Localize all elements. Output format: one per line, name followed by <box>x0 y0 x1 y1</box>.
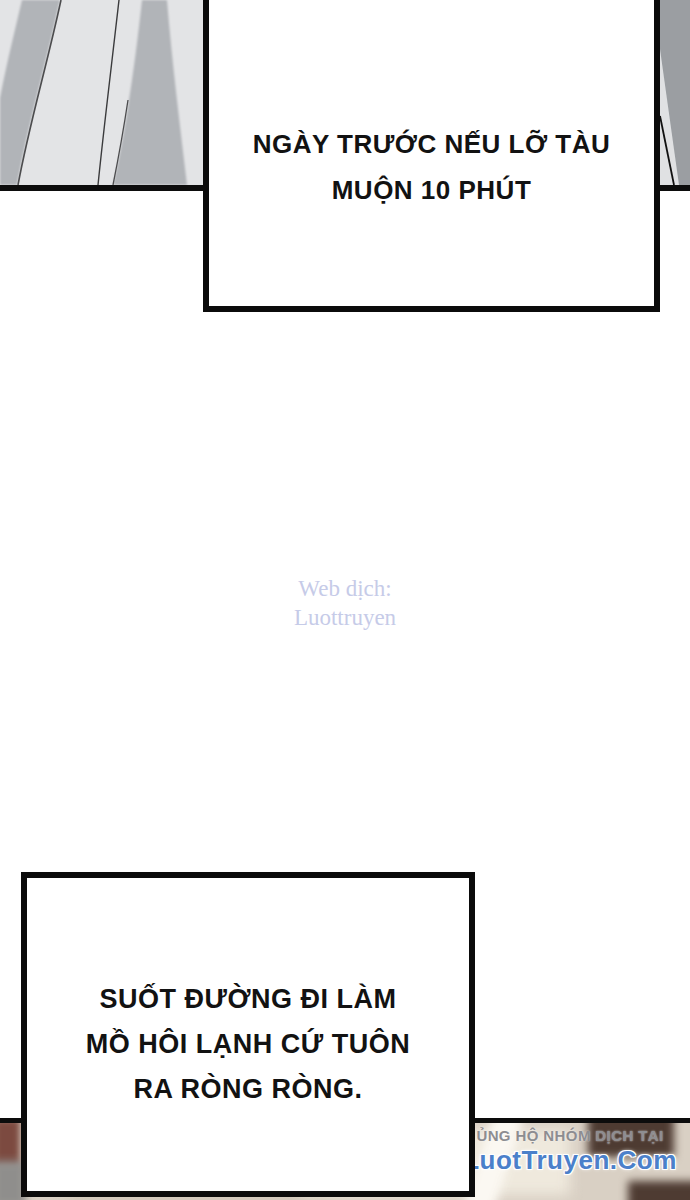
watermark: Web dịch: Luottruyen <box>245 574 445 632</box>
translator-credit: ỦNG HỘ NHÓM DỊCH TẠI LuotTruyen.Com <box>455 1127 685 1176</box>
speech-text-line: SUỐT ĐƯỜNG ĐI LÀM <box>100 977 397 1022</box>
speech-text-line: RA RÒNG RÒNG. <box>134 1067 363 1112</box>
credit-support-text: ỦNG HỘ NHÓM DỊCH TẠI <box>455 1127 685 1144</box>
speech-text-line: MUỘN 10 PHÚT <box>332 167 532 213</box>
credit-site-name: LuotTruyen.Com <box>455 1145 685 1176</box>
watermark-line: Luottruyen <box>245 603 445 632</box>
speech-text-line: MỒ HÔI LẠNH CỨ TUÔN <box>86 1022 410 1067</box>
speech-bubble-top: NGÀY TRƯỚC NẾU LỠ TÀU MUỘN 10 PHÚT <box>203 0 660 312</box>
photo-blur-shape <box>628 1181 690 1200</box>
speech-bubble-bottom: SUỐT ĐƯỜNG ĐI LÀM MỒ HÔI LẠNH CỨ TUÔN RA… <box>21 872 475 1197</box>
panel-corner-art <box>659 0 690 185</box>
speech-text-line: NGÀY TRƯỚC NẾU LỠ TÀU <box>253 121 611 167</box>
watermark-line: Web dịch: <box>245 574 445 603</box>
photo-blur-shape <box>0 1119 20 1167</box>
fabric-panel-art <box>0 0 204 185</box>
comic-page: NGÀY TRƯỚC NẾU LỠ TÀU MUỘN 10 PHÚT Web d… <box>0 0 690 1200</box>
